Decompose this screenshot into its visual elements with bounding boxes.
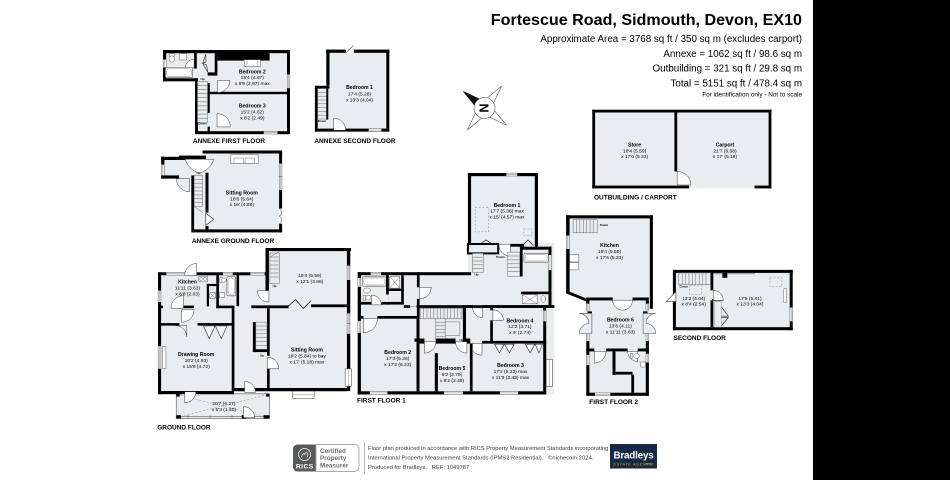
svg-text:13'6 (4.11): 13'6 (4.11): [609, 323, 632, 329]
svg-text:Down: Down: [318, 119, 327, 123]
svg-text:Bradleys: Bradleys: [613, 451, 654, 462]
svg-text:Bedroom 2: Bedroom 2: [239, 69, 266, 75]
svg-text:x 6'8 (2.03): x 6'8 (2.03): [175, 292, 200, 298]
svg-text:Bedroom 4: Bedroom 4: [506, 318, 533, 324]
svg-text:18'6 (5.64): 18'6 (5.64): [230, 196, 254, 202]
svg-text:17'4 (5.28): 17'4 (5.28): [348, 91, 372, 97]
svg-text:Up: Up: [474, 272, 478, 276]
svg-text:Sitting Room: Sitting Room: [226, 190, 258, 196]
svg-text:For identification only - Not: For identification only - Not to scale: [702, 92, 802, 99]
svg-text:Bedroom 3: Bedroom 3: [239, 103, 266, 109]
svg-text:x 15'6 (4.72): x 15'6 (4.72): [183, 364, 210, 370]
svg-text:9'2 (2.79): 9'2 (2.79): [442, 372, 463, 378]
svg-text:RICS: RICS: [296, 464, 314, 471]
svg-text:Up: Up: [459, 338, 463, 342]
svg-text:x 5'3 (1.60): x 5'3 (1.60): [212, 407, 237, 413]
svg-text:Bedroom 5: Bedroom 5: [439, 366, 466, 372]
svg-text:Bedroom 1: Bedroom 1: [494, 203, 521, 209]
svg-text:20'7 (6.27): 20'7 (6.27): [212, 401, 236, 407]
svg-text:Kitchen: Kitchen: [600, 243, 619, 249]
svg-text:18'4 (5.59): 18'4 (5.59): [298, 273, 322, 279]
svg-text:GROUND FLOOR: GROUND FLOOR: [157, 424, 211, 431]
svg-text:x 17' (5.18) max: x 17' (5.18) max: [289, 360, 324, 366]
svg-text:ANNEXE FIRST FLOOR: ANNEXE FIRST FLOOR: [193, 138, 266, 145]
svg-text:Measurer: Measurer: [320, 462, 349, 469]
svg-text:Outbuilding = 321 sq ft / 29.8: Outbuilding = 321 sq ft / 29.8 sq m: [653, 64, 803, 75]
svg-text:Bedroom 1: Bedroom 1: [346, 85, 373, 91]
svg-text:17'2 (5.23) max: 17'2 (5.23) max: [494, 369, 528, 375]
svg-text:Approximate Area = 3768 sq ft: Approximate Area = 3768 sq ft / 350 sq m…: [540, 34, 802, 45]
svg-text:17'3 (5.26): 17'3 (5.26): [386, 356, 410, 362]
svg-text:Kitchen: Kitchen: [178, 279, 197, 285]
svg-text:Up: Up: [200, 77, 204, 81]
svg-text:x 17'2 (5.23): x 17'2 (5.23): [384, 362, 411, 368]
svg-text:x 8'2 (2.49): x 8'2 (2.49): [440, 378, 465, 384]
svg-text:FIRST FLOOR 2: FIRST FLOOR 2: [589, 399, 638, 406]
svg-text:x 17'6 (5.33): x 17'6 (5.33): [596, 255, 623, 261]
svg-text:15'4 (4.67): 15'4 (4.67): [241, 75, 265, 81]
svg-text:12'2 (3.71): 12'2 (3.71): [508, 324, 532, 330]
svg-text:x 17' (5.18): x 17' (5.18): [713, 154, 738, 160]
svg-text:11'11 (3.63): 11'11 (3.63): [175, 286, 201, 292]
svg-text:Floor plan produced in accorda: Floor plan produced in accordance with R…: [368, 446, 608, 452]
svg-text:x 9' (2.74): x 9' (2.74): [509, 330, 531, 336]
svg-text:15'2 (4.62): 15'2 (4.62): [241, 109, 265, 115]
svg-text:Down: Down: [198, 122, 207, 126]
svg-text:FIRST FLOOR 1: FIRST FLOOR 1: [357, 397, 406, 404]
svg-text:x 16' (4.88): x 16' (4.88): [230, 202, 255, 208]
svg-text:Fortescue Road, Sidmouth, Devo: Fortescue Road, Sidmouth, Devon, EX10: [491, 11, 802, 29]
svg-text:Up: Up: [196, 171, 200, 175]
svg-text:21'7 (6.58): 21'7 (6.58): [713, 148, 737, 154]
svg-text:x 8'2 (2.49): x 8'2 (2.49): [240, 115, 265, 121]
svg-text:x 11'11 (3.63): x 11'11 (3.63): [606, 329, 635, 335]
svg-text:Up: Up: [260, 353, 264, 357]
svg-text:x 11'3 (3.43) max: x 11'3 (3.43) max: [492, 375, 530, 381]
svg-text:SECOND FLOOR: SECOND FLOOR: [674, 335, 727, 342]
svg-text:x 13'3 (4.04): x 13'3 (4.04): [736, 302, 763, 308]
svg-text:Bedroom 2: Bedroom 2: [384, 350, 411, 356]
svg-text:Down: Down: [496, 255, 505, 259]
svg-text:17'7 (5.36) max: 17'7 (5.36) max: [490, 209, 524, 215]
svg-text:ANNEXE GROUND FLOOR: ANNEXE GROUND FLOOR: [192, 238, 275, 245]
svg-text:x 9'9 (2.97) max: x 9'9 (2.97) max: [235, 81, 270, 87]
svg-text:Down: Down: [680, 284, 689, 288]
svg-text:17'9 (5.41): 17'9 (5.41): [738, 296, 762, 302]
svg-text:x 12'1 (3.68): x 12'1 (3.68): [296, 279, 323, 285]
svg-text:Annexe = 1062 sq ft / 98.6 sq: Annexe = 1062 sq ft / 98.6 sq m: [663, 49, 802, 60]
svg-text:18'4 (5.59): 18'4 (5.59): [598, 249, 622, 255]
svg-text:19'2 (5.84) to bay: 19'2 (5.84) to bay: [288, 354, 326, 360]
svg-text:13'3 (4.04): 13'3 (4.04): [682, 296, 706, 302]
svg-text:Property: Property: [320, 455, 347, 462]
svg-text:Certified: Certified: [320, 448, 346, 455]
svg-text:Produced for Bradleys. REF:: Produced for Bradleys. REF: 1049787: [368, 465, 469, 471]
svg-text:16'2 (4.93): 16'2 (4.93): [185, 358, 209, 364]
svg-text:x 17'6 (5.33): x 17'6 (5.33): [621, 154, 648, 160]
svg-text:Bedroom 3: Bedroom 3: [497, 363, 524, 369]
svg-text:Drawing Room: Drawing Room: [178, 352, 215, 358]
svg-text:Total = 5151 sq ft / 478.4 sq: Total = 5151 sq ft / 478.4 sq m: [670, 78, 802, 89]
svg-text:Carport: Carport: [716, 142, 735, 148]
svg-text:x 8'4 (2.54): x 8'4 (2.54): [682, 302, 707, 308]
svg-text:N: N: [477, 103, 491, 112]
svg-text:OUTBUILDING / CARPORT: OUTBUILDING / CARPORT: [594, 194, 677, 201]
svg-text:x 13'3 (4.04): x 13'3 (4.04): [346, 97, 373, 103]
svg-text:Down: Down: [600, 223, 609, 227]
svg-text:International Property Measure: International Property Measurement Stand…: [368, 455, 594, 462]
svg-text:ANNEXE SECOND FLOOR: ANNEXE SECOND FLOOR: [314, 138, 396, 145]
svg-text:Bedroom 6: Bedroom 6: [607, 318, 634, 324]
svg-text:Store: Store: [628, 142, 641, 148]
svg-text:x 15' (4.57) max: x 15' (4.57) max: [490, 215, 525, 221]
svg-text:Sitting Room: Sitting Room: [291, 348, 323, 354]
svg-text:18'4 (5.59): 18'4 (5.59): [623, 148, 647, 154]
svg-text:Up: Up: [272, 284, 276, 288]
